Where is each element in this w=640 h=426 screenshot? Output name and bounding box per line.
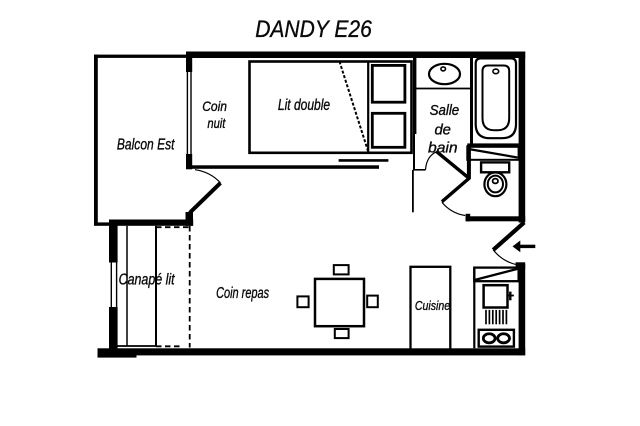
- svg-text:Coin: Coin: [202, 98, 227, 114]
- svg-text:nuit: nuit: [207, 115, 226, 131]
- svg-text:Lit double: Lit double: [278, 97, 330, 114]
- svg-text:Cuisine: Cuisine: [415, 298, 450, 313]
- svg-text:de: de: [434, 121, 451, 138]
- svg-text:Balcon Est: Balcon Est: [117, 137, 175, 154]
- svg-text:Coin repas: Coin repas: [216, 285, 269, 302]
- svg-text:bain: bain: [428, 139, 458, 156]
- svg-text:DANDY E26: DANDY E26: [255, 16, 372, 43]
- svg-text:Salle: Salle: [430, 102, 460, 119]
